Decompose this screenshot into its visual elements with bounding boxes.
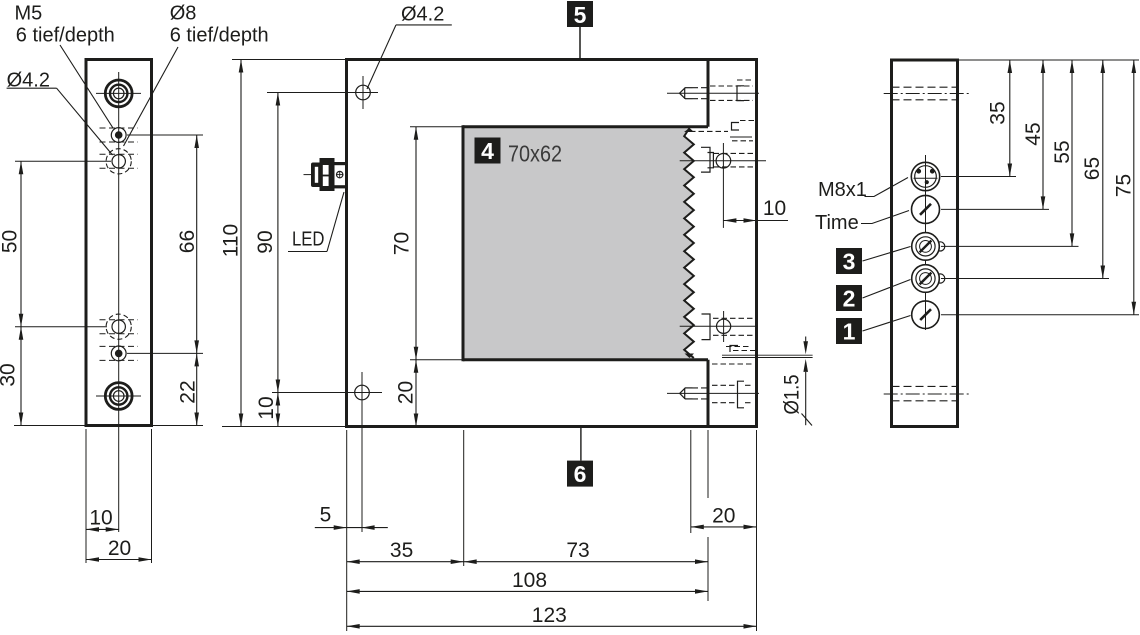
svg-text:3: 3 — [843, 249, 856, 275]
svg-text:5: 5 — [320, 504, 332, 527]
svg-text:10: 10 — [763, 197, 786, 220]
svg-text:50: 50 — [0, 230, 22, 253]
svg-text:73: 73 — [566, 539, 589, 562]
svg-text:Time: Time — [815, 212, 859, 234]
svg-text:LED: LED — [292, 229, 325, 251]
svg-text:6: 6 — [574, 461, 587, 487]
svg-text:110: 110 — [220, 224, 243, 257]
svg-text:4: 4 — [481, 138, 494, 164]
svg-text:55: 55 — [1051, 140, 1074, 163]
svg-text:M8x1: M8x1 — [818, 179, 867, 201]
svg-text:30: 30 — [0, 363, 19, 386]
svg-text:20: 20 — [108, 537, 131, 560]
svg-text:66: 66 — [176, 230, 199, 253]
svg-text:123: 123 — [532, 604, 567, 627]
svg-text:75: 75 — [1113, 174, 1136, 197]
svg-text:6 tief/depth: 6 tief/depth — [16, 25, 115, 47]
svg-text:Ø4.2: Ø4.2 — [401, 4, 444, 26]
svg-text:35: 35 — [987, 101, 1010, 124]
svg-text:1: 1 — [843, 319, 856, 345]
svg-text:108: 108 — [512, 569, 547, 592]
svg-text:2: 2 — [843, 286, 856, 312]
svg-text:5: 5 — [574, 2, 587, 28]
svg-text:6 tief/depth: 6 tief/depth — [170, 25, 269, 47]
svg-text:65: 65 — [1081, 157, 1104, 180]
svg-text:10: 10 — [89, 507, 112, 530]
svg-text:70x62: 70x62 — [508, 140, 562, 166]
svg-text:70: 70 — [390, 232, 413, 255]
svg-text:90: 90 — [254, 230, 277, 253]
svg-text:20: 20 — [712, 504, 735, 527]
svg-text:35: 35 — [390, 539, 413, 562]
svg-text:20: 20 — [394, 381, 417, 404]
svg-text:M5: M5 — [15, 3, 43, 25]
svg-text:22: 22 — [177, 380, 200, 403]
svg-text:Ø1.5: Ø1.5 — [781, 375, 804, 415]
svg-text:10: 10 — [255, 396, 278, 419]
svg-text:45: 45 — [1022, 122, 1045, 145]
svg-text:Ø8: Ø8 — [170, 3, 197, 25]
